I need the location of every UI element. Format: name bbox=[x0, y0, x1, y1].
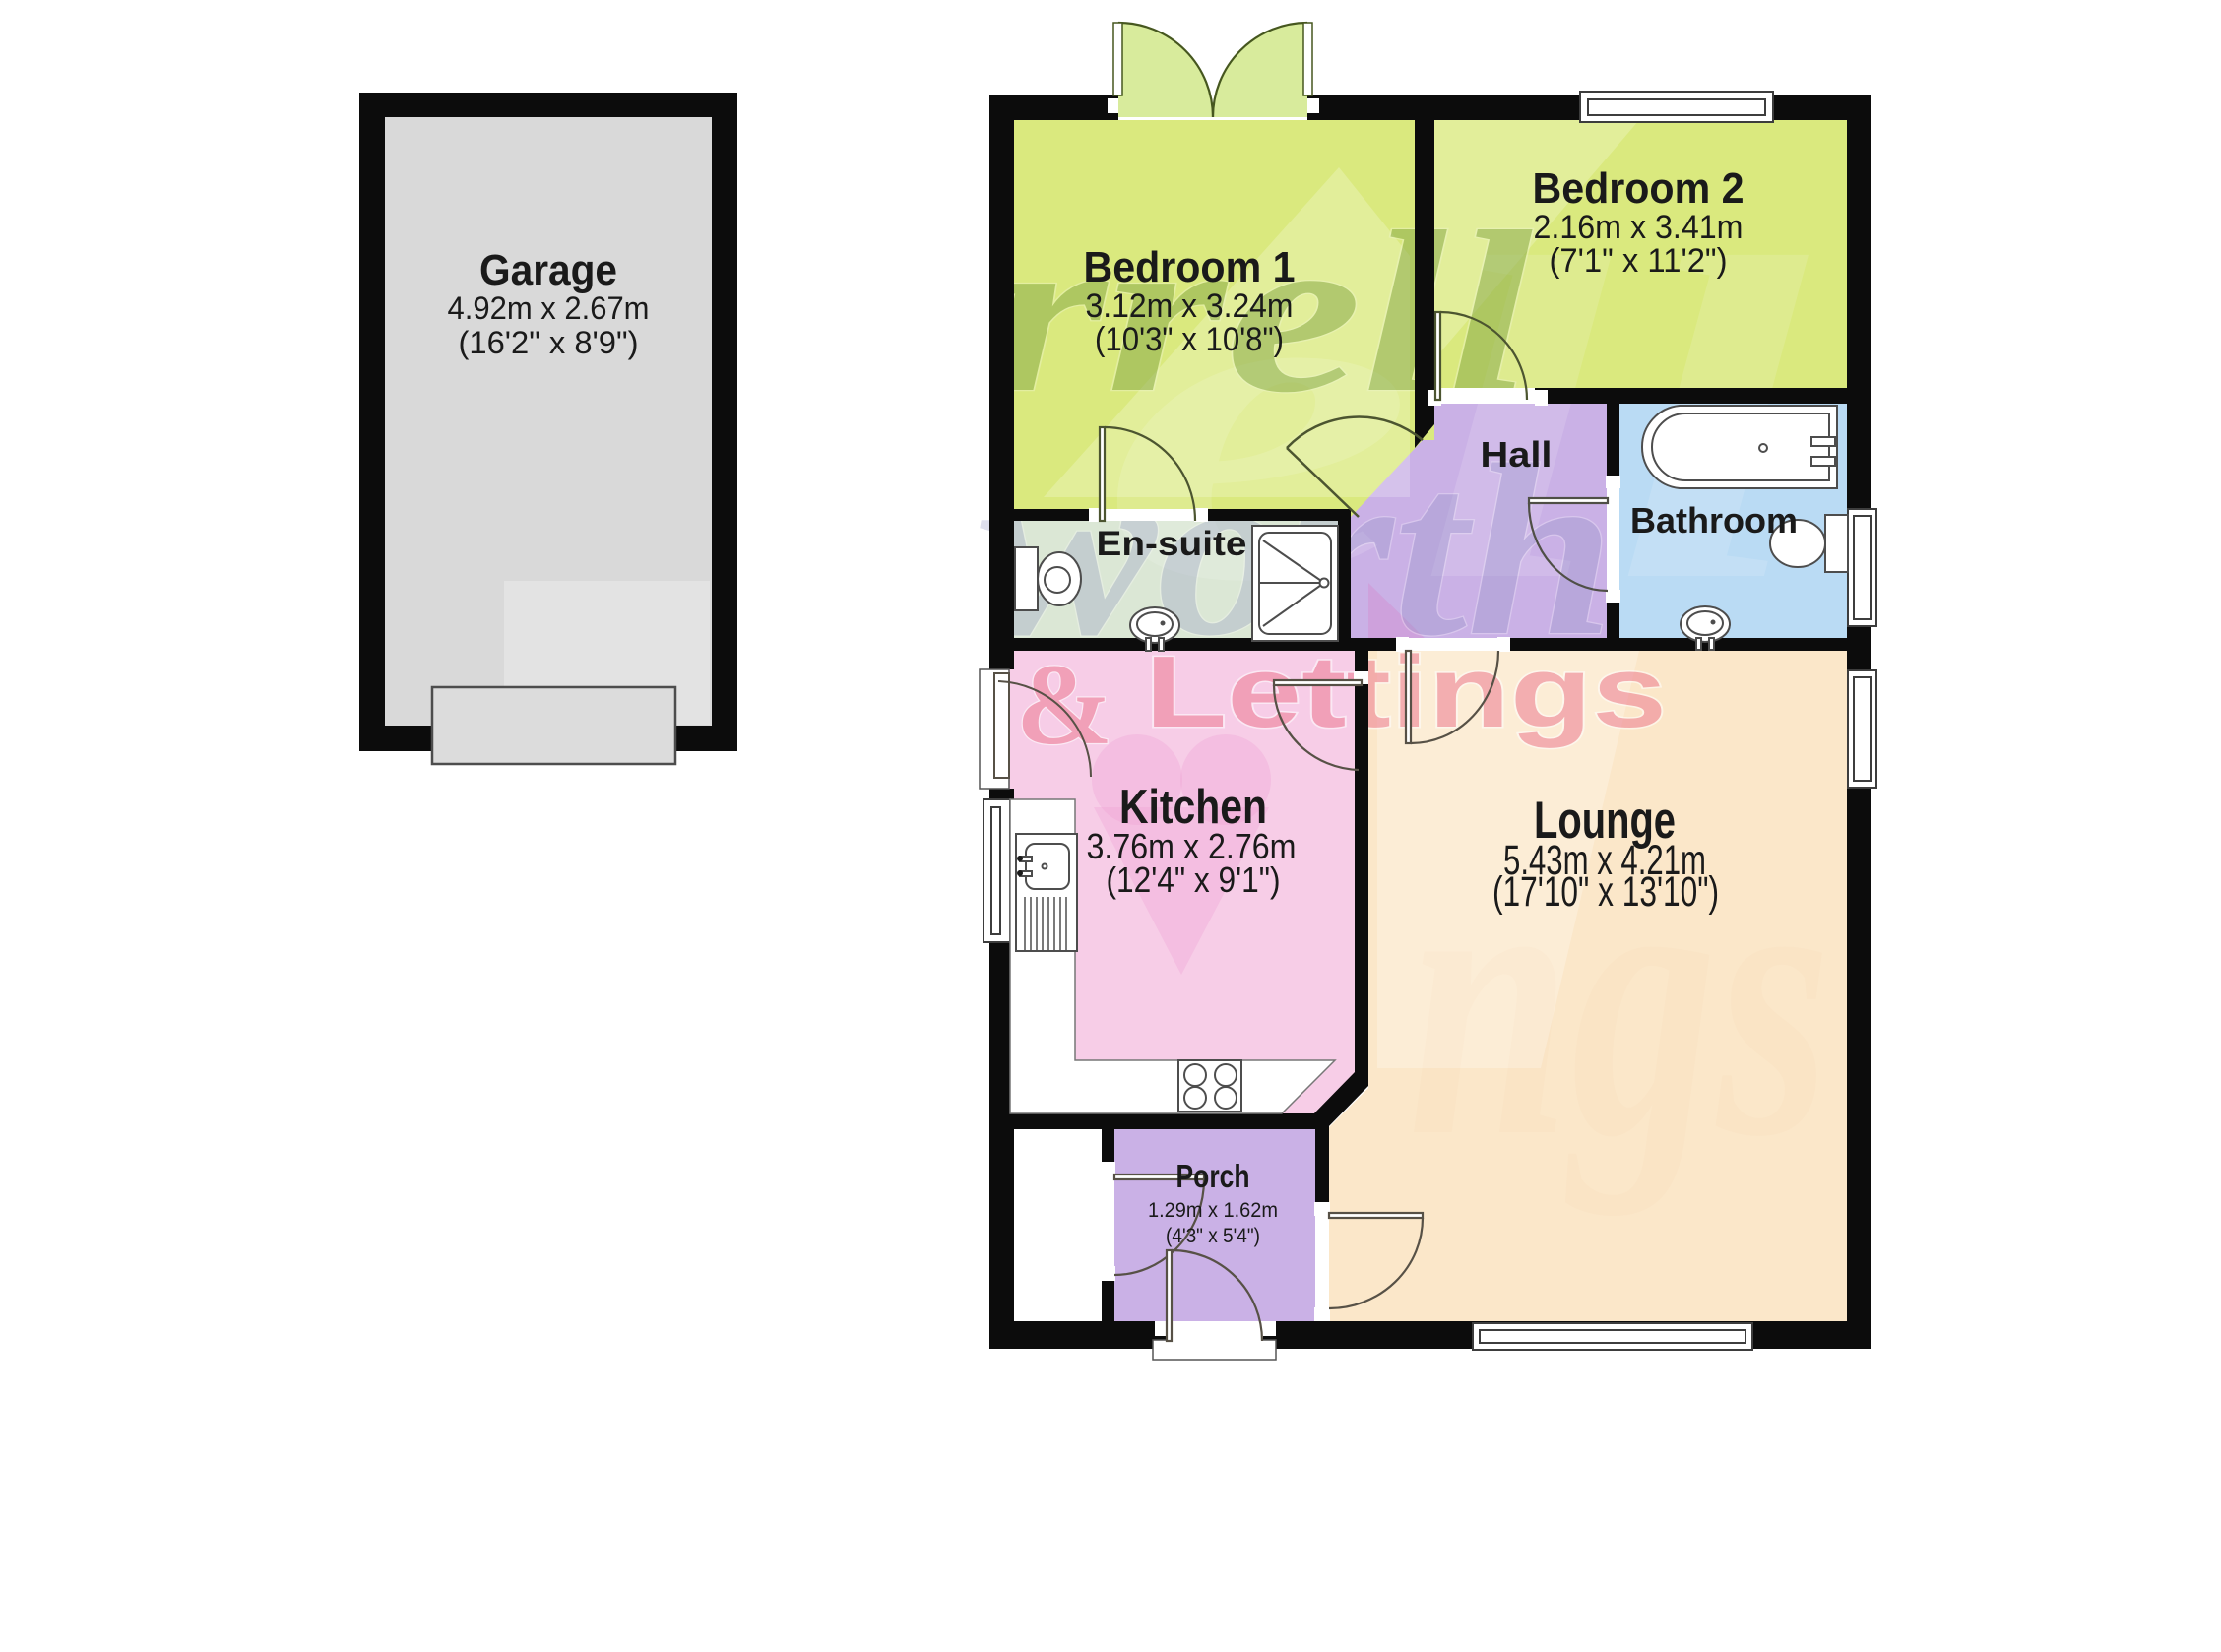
svg-text:En-suite: En-suite bbox=[1097, 525, 1247, 563]
svg-text:4.92m x 2.67m: 4.92m x 2.67m bbox=[448, 290, 650, 326]
svg-text:(10'3" x 10'8"): (10'3" x 10'8") bbox=[1095, 321, 1284, 358]
svg-text:Bathroom: Bathroom bbox=[1630, 500, 1798, 540]
svg-text:(16'2" x 8'9"): (16'2" x 8'9") bbox=[459, 325, 639, 360]
svg-text:Porch: Porch bbox=[1176, 1158, 1250, 1194]
svg-text:3.12m x 3.24m: 3.12m x 3.24m bbox=[1086, 287, 1294, 325]
svg-text:(7'1" x 11'2"): (7'1" x 11'2") bbox=[1550, 242, 1728, 280]
svg-text:(12'4" x 9'1"): (12'4" x 9'1") bbox=[1107, 859, 1281, 900]
svg-text:Garage: Garage bbox=[479, 246, 617, 294]
svg-text:Hall: Hall bbox=[1481, 434, 1553, 475]
svg-text:(4'3" x 5'4"): (4'3" x 5'4") bbox=[1166, 1225, 1260, 1247]
svg-text:Bedroom 1: Bedroom 1 bbox=[1084, 243, 1296, 291]
svg-text:(17'10" x 13'10"): (17'10" x 13'10") bbox=[1492, 868, 1719, 916]
svg-text:1.29m x 1.62m: 1.29m x 1.62m bbox=[1148, 1199, 1278, 1222]
svg-text:&: & bbox=[1016, 640, 1112, 769]
svg-text:2.16m x 3.41m: 2.16m x 3.41m bbox=[1534, 209, 1744, 246]
svg-text:Bedroom 2: Bedroom 2 bbox=[1533, 164, 1745, 213]
